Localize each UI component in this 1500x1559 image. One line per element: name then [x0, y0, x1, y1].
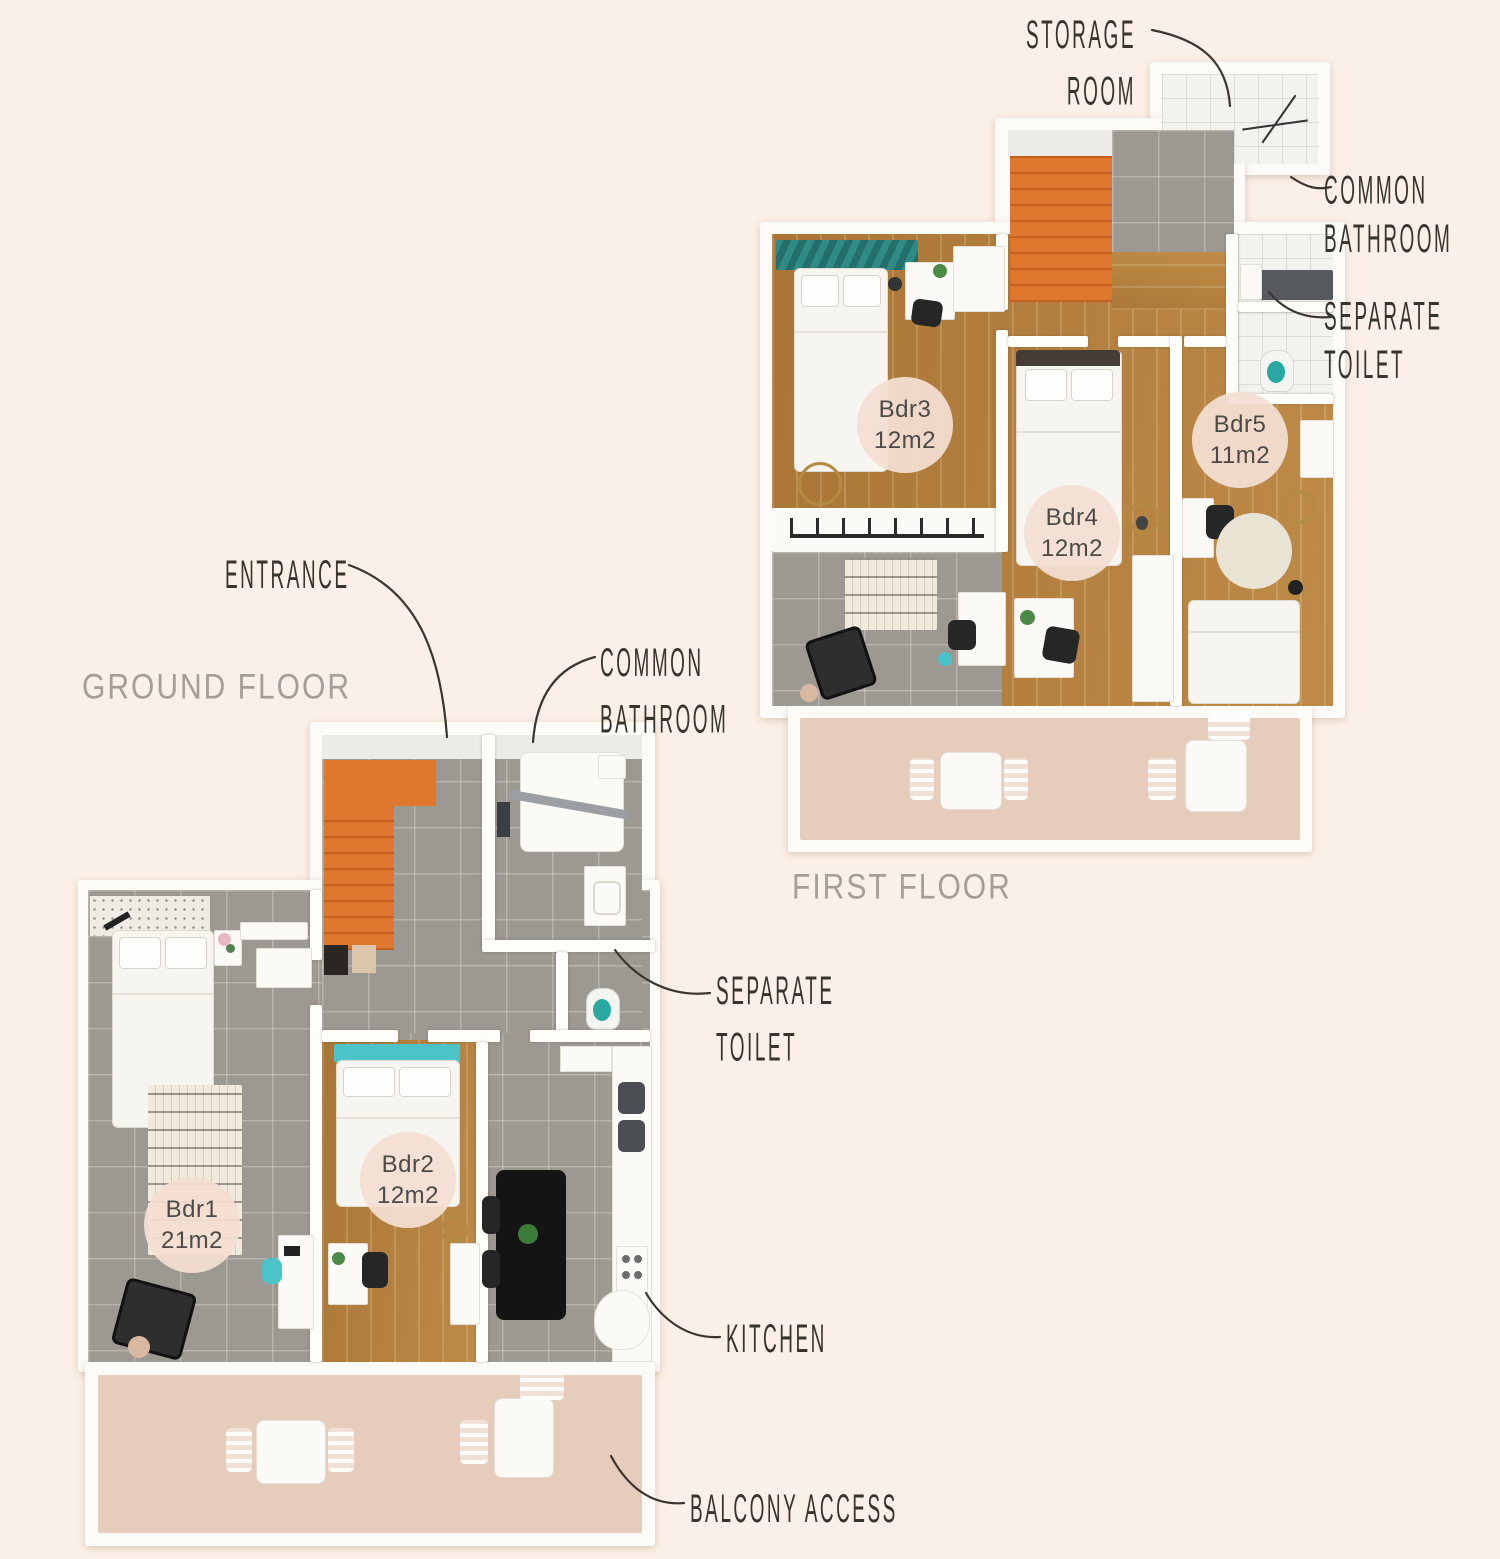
gf-door-mat-dark — [324, 945, 348, 975]
room-area: 12m2 — [874, 425, 936, 456]
drying-rack — [1242, 96, 1312, 146]
room-name: Bdr3 — [879, 394, 932, 425]
ff-balcony-chair — [1004, 758, 1028, 800]
kitchen-chair — [482, 1250, 500, 1288]
bdr2-lamp — [440, 1216, 468, 1244]
bdr5-mirror — [1282, 490, 1316, 524]
ff-toilet — [1260, 350, 1294, 392]
bdr1-stool — [262, 1258, 282, 1284]
ff-balcony-table — [940, 752, 1002, 810]
room-badge-bdr2: Bdr2 12m2 — [360, 1132, 456, 1228]
room-area: 12m2 — [1041, 533, 1103, 564]
bdr5-bed — [1188, 600, 1300, 704]
bdr3-basket — [798, 462, 842, 506]
gf-sink — [584, 866, 626, 926]
ff-balcony-chair — [910, 758, 934, 800]
gf-door-mat-beige — [352, 945, 376, 973]
label-gf-common-bathroom: COMMON BATHROOM — [600, 638, 728, 750]
room-area: 11m2 — [1210, 440, 1270, 471]
room-badge-bdr1: Bdr1 21m2 — [144, 1177, 240, 1273]
bdr3-chair — [910, 298, 943, 328]
ff-balcony-sofa-back — [1208, 712, 1250, 740]
floor-plan-poster: Bdr3 12m2 Bdr4 12m2 Bdr5 11m2 FIRST FLOO… — [0, 0, 1500, 1559]
gf-balcony-chair — [328, 1428, 354, 1472]
bdr2-chair — [362, 1252, 388, 1288]
ff-hall-tile — [1112, 130, 1234, 254]
bdr3-plant — [933, 264, 947, 278]
kitchen-chair — [482, 1196, 500, 1234]
ff-wall — [1118, 336, 1174, 347]
gf-balcony-table — [256, 1420, 326, 1484]
gf-wall — [482, 735, 495, 947]
label-line: COMMON — [1324, 170, 1452, 218]
label-line: TOILET — [716, 1022, 835, 1078]
label-line: SEPARATE — [716, 966, 835, 1022]
kitchen-table — [496, 1170, 566, 1320]
ff-teal-stool — [938, 652, 952, 666]
label-line: SEPARATE — [1324, 296, 1443, 344]
ff-living-rug — [845, 558, 937, 630]
gf-balcony-sofa — [494, 1398, 554, 1478]
room-area: 12m2 — [377, 1180, 439, 1211]
bdr1-flower-leaf — [226, 944, 235, 953]
ff-wall — [1238, 302, 1333, 312]
label-balcony-access: BALCONY ACCESS — [690, 1484, 898, 1540]
room-name: Bdr2 — [382, 1149, 435, 1180]
gf-balcony-sofa-back — [520, 1372, 564, 1400]
bdr1-lamp — [128, 1336, 150, 1358]
bdr4-lamp-shade — [1136, 516, 1148, 530]
room-badge-bdr4: Bdr4 12m2 — [1024, 485, 1120, 581]
label-line: COMMON — [600, 638, 728, 694]
bdr1-closet — [256, 948, 312, 988]
room-badge-bdr3: Bdr3 12m2 — [857, 377, 953, 473]
bdr5-round-rug — [1216, 513, 1292, 589]
gf-wall — [428, 1030, 500, 1042]
bdr1-wall-shelf — [240, 922, 308, 940]
gf-balcony-chair — [226, 1428, 252, 1472]
label-line: BALCONY ACCESS — [690, 1484, 898, 1540]
kitchen-plant — [518, 1224, 538, 1244]
label-line: BATHROOM — [1324, 218, 1452, 266]
ff-wall — [996, 330, 1008, 552]
bdr5-shelf — [1300, 420, 1334, 478]
room-name: Bdr5 — [1214, 409, 1267, 440]
room-name: Bdr4 — [1046, 502, 1099, 533]
ff-living-desk-chair — [948, 620, 976, 650]
label-line: BATHROOM — [600, 694, 728, 750]
ff-balcony-sofa — [1185, 740, 1247, 812]
label-line: TOILET — [1324, 344, 1443, 392]
gf-wall — [322, 1030, 398, 1042]
bdr2-plant — [332, 1252, 345, 1265]
label-line: ENTRANCE — [225, 550, 350, 606]
ff-stairs — [1010, 156, 1112, 302]
kitchen-cabinet — [560, 1046, 612, 1072]
kitchen-armchair — [594, 1290, 650, 1350]
label-line: ROOM — [936, 66, 1136, 122]
gf-bath-mat — [497, 802, 510, 837]
label-line: STORAGE — [936, 10, 1136, 66]
label-ff-common-bathroom: COMMON BATHROOM — [1324, 170, 1452, 266]
gf-stairs-winder — [324, 760, 436, 806]
ff-wall — [1008, 336, 1088, 347]
bdr4-wardrobe — [1132, 555, 1174, 702]
ground-floor-title: GROUND FLOOR — [82, 668, 351, 708]
ff-living-lamp — [800, 684, 818, 702]
label-gf-separate-toilet: SEPARATE TOILET — [716, 966, 835, 1078]
label-entrance: ENTRANCE — [225, 550, 350, 606]
bdr3-headboard — [776, 240, 918, 270]
gf-shower-head — [598, 755, 626, 779]
gf-wall — [556, 952, 568, 1033]
first-floor-title: FIRST FLOOR — [792, 868, 1012, 908]
bdr3-stool — [888, 277, 902, 291]
ff-wall — [1226, 234, 1238, 404]
bdr1-desk-lamp — [284, 1246, 300, 1256]
bdr3-closet — [953, 246, 1005, 312]
bdr4-chair — [1041, 625, 1080, 664]
ff-wall — [1184, 336, 1226, 347]
label-kitchen: KITCHEN — [726, 1314, 827, 1370]
gf-wall — [482, 940, 655, 952]
bdr2-dresser — [450, 1243, 480, 1325]
ff-balcony-chair — [1148, 758, 1176, 800]
label-storage-room: STORAGE ROOM — [936, 10, 1136, 122]
bdr4-plant — [1020, 610, 1035, 625]
connector-entrance — [349, 565, 447, 737]
label-line: KITCHEN — [726, 1314, 827, 1370]
ff-washing-machine — [1240, 264, 1262, 300]
kitchen-sink — [618, 1120, 645, 1152]
room-badge-bdr5: Bdr5 11m2 — [1192, 392, 1288, 488]
gf-balcony-chair — [460, 1420, 488, 1464]
kitchen-sink — [618, 1082, 645, 1114]
label-ff-separate-toilet: SEPARATE TOILET — [1324, 296, 1443, 392]
gf-toilet — [586, 988, 620, 1030]
ff-hall-corridor — [1112, 252, 1234, 310]
room-name: Bdr1 — [166, 1194, 219, 1225]
room-area: 21m2 — [161, 1225, 223, 1256]
ff-bathroom-counter — [1258, 270, 1333, 300]
ff-wardrobe-rail-bar — [790, 534, 984, 538]
gf-wall — [530, 1030, 650, 1042]
bdr5-stool — [1288, 580, 1303, 595]
